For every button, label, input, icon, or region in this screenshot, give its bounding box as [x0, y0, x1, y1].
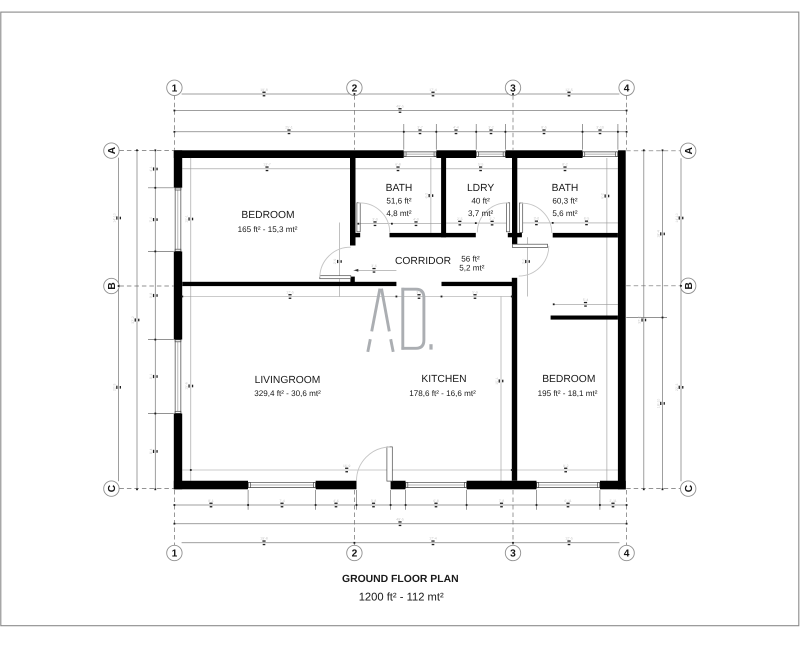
svg-text:3'-6: 3'-6 [371, 264, 377, 268]
svg-text:GROUND FLOOR PLAN: GROUND FLOOR PLAN [342, 574, 459, 585]
svg-text:BEDROOM: BEDROOM [241, 210, 294, 221]
svg-text:8'-1: 8'-1 [149, 374, 153, 380]
svg-text:60,3 ft²: 60,3 ft² [552, 197, 577, 206]
svg-text:3'-0: 3'-0 [372, 218, 378, 222]
svg-text:5'-9: 5'-9 [472, 290, 478, 294]
svg-text:BATH: BATH [386, 183, 413, 194]
svg-text:40 ft²: 40 ft² [471, 197, 490, 206]
svg-text:9'-8: 9'-8 [149, 293, 153, 299]
svg-text:3'-0: 3'-0 [534, 217, 540, 221]
svg-text:15'-1: 15'-1 [495, 377, 499, 385]
svg-text:7'-8: 7'-8 [499, 499, 505, 503]
svg-text:3: 3 [510, 549, 516, 560]
svg-text:6'-2: 6'-2 [601, 193, 605, 199]
svg-text:6'-8: 6'-8 [433, 499, 439, 503]
svg-text:3'-10: 3'-10 [596, 126, 604, 130]
svg-text:5'-5: 5'-5 [478, 163, 484, 167]
svg-text:2'-5: 2'-5 [457, 217, 463, 221]
svg-text:4: 4 [624, 549, 630, 560]
svg-text:1: 1 [172, 549, 178, 560]
svg-text:2: 2 [352, 549, 358, 560]
svg-text:5,2 mt²: 5,2 mt² [459, 263, 484, 272]
svg-text:A: A [684, 146, 695, 154]
svg-text:3'-2: 3'-2 [488, 126, 494, 130]
svg-text:B: B [107, 282, 118, 289]
svg-text:KITCHEN: KITCHEN [421, 374, 466, 385]
svg-text:6'-5: 6'-5 [584, 217, 590, 221]
svg-text:13'-7: 13'-7 [263, 163, 271, 167]
svg-text:9'-2: 9'-2 [563, 464, 569, 468]
svg-text:1200 ft² - 112 mt²: 1200 ft² - 112 mt² [359, 592, 444, 604]
svg-text:4'-4: 4'-4 [453, 126, 459, 130]
svg-text:12'-5: 12'-5 [565, 537, 573, 541]
svg-text:3'-7: 3'-7 [417, 126, 423, 130]
svg-text:22'-3: 22'-3 [112, 383, 116, 391]
svg-text:14'-10: 14'-10 [112, 213, 116, 222]
svg-text:37'-2: 37'-2 [131, 316, 135, 324]
svg-text:18'-4: 18'-4 [656, 230, 660, 238]
svg-text:19'-8: 19'-8 [260, 88, 268, 92]
svg-text:56 ft²: 56 ft² [461, 254, 480, 263]
svg-text:B: B [684, 282, 695, 289]
svg-text:14'-10: 14'-10 [675, 213, 679, 222]
svg-text:5'-4: 5'-4 [583, 298, 589, 302]
svg-text:17'-4: 17'-4 [429, 537, 437, 541]
svg-text:7'-4: 7'-4 [279, 499, 285, 503]
svg-text:3,7 mt²: 3,7 mt² [468, 209, 493, 218]
svg-text:17'-5: 17'-5 [286, 290, 294, 294]
svg-text:25'-1: 25'-1 [285, 126, 293, 130]
svg-text:22'-3: 22'-3 [675, 383, 679, 391]
svg-text:BATH: BATH [552, 183, 579, 194]
svg-text:3'-0: 3'-0 [521, 259, 525, 265]
svg-text:3'-8: 3'-8 [371, 499, 377, 503]
svg-text:8'-4: 8'-4 [149, 449, 153, 455]
svg-text:LIVINGROOM: LIVINGROOM [255, 375, 321, 386]
svg-text:4: 4 [624, 84, 630, 95]
svg-text:3: 3 [510, 84, 516, 95]
svg-text:51,6 ft²: 51,6 ft² [386, 197, 411, 206]
svg-text:6'-8: 6'-8 [395, 163, 401, 167]
svg-text:17'-4: 17'-4 [429, 88, 437, 92]
svg-text:2'-9: 2'-9 [333, 259, 337, 265]
svg-text:49'-5: 49'-5 [396, 518, 404, 522]
svg-text:5,6 mt²: 5,6 mt² [552, 209, 577, 218]
svg-text:7'-0: 7'-0 [149, 217, 153, 223]
svg-text:37'-2: 37'-2 [638, 316, 642, 324]
svg-text:C: C [107, 484, 118, 492]
svg-text:18'-10: 18'-10 [656, 399, 660, 408]
svg-text:A: A [107, 146, 118, 154]
svg-text:178,6 ft² - 16,6 mt²: 178,6 ft² - 16,6 mt² [409, 389, 476, 398]
svg-text:49'-5: 49'-5 [396, 104, 404, 108]
svg-text:CORRIDOR: CORRIDOR [395, 256, 451, 267]
svg-text:4'-0: 4'-0 [413, 218, 419, 222]
svg-text:LDRY: LDRY [467, 183, 494, 194]
svg-text:2: 2 [352, 84, 358, 95]
svg-text:8'-1: 8'-1 [208, 499, 214, 503]
svg-text:4'-1: 4'-1 [149, 166, 153, 172]
svg-text:16'-9: 16'-9 [343, 464, 351, 468]
svg-text:10'-1: 10'-1 [185, 215, 189, 223]
svg-text:1: 1 [172, 84, 178, 95]
svg-text:4,8 mt²: 4,8 mt² [386, 209, 411, 218]
svg-text:BEDROOM: BEDROOM [542, 374, 595, 385]
svg-text:329,4 ft² - 30,6 mt²: 329,4 ft² - 30,6 mt² [254, 389, 321, 398]
svg-text:6'-11: 6'-11 [564, 499, 571, 503]
svg-text:165 ft² - 15,3 mt²: 165 ft² - 15,3 mt² [238, 225, 298, 234]
svg-text:6'-2: 6'-2 [425, 193, 429, 199]
svg-text:12'-5: 12'-5 [565, 88, 573, 92]
svg-text:19'-8: 19'-8 [260, 537, 268, 541]
svg-text:2'-11: 2'-11 [609, 499, 616, 503]
svg-text:8'-2: 8'-2 [562, 163, 568, 167]
svg-text:C: C [684, 484, 695, 492]
svg-text:8'-5: 8'-5 [541, 126, 547, 130]
svg-text:15'-6: 15'-6 [185, 382, 189, 390]
svg-text:4'-6: 4'-6 [333, 499, 339, 503]
svg-text:195 ft² - 18,1 mt²: 195 ft² - 18,1 mt² [538, 389, 598, 398]
